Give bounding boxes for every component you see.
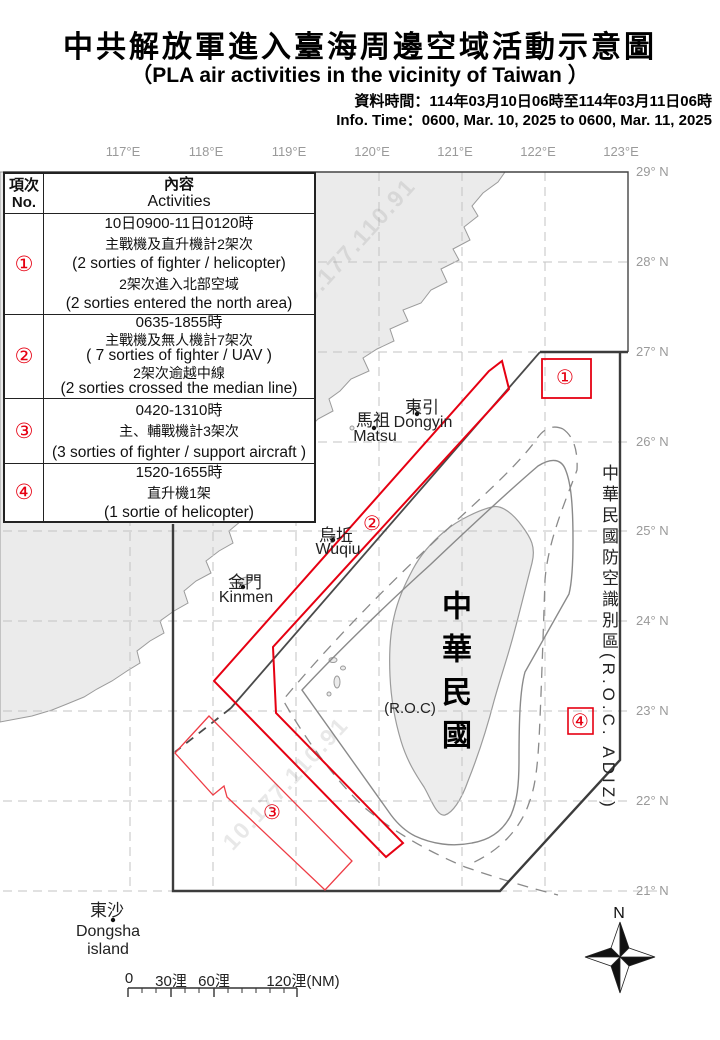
compass-rose-icon [585, 922, 655, 993]
info-time-en: Info. Time：0600, Mar. 10, 2025 to 0600, … [336, 109, 712, 130]
row1-line: (2 sorties of fighter / helicopter) [72, 254, 286, 274]
taiwan-roc-label: 中華民國 [431, 590, 475, 762]
row1-line: 2架次進入北部空域 [119, 274, 239, 294]
header-content-en: Activities [147, 193, 210, 211]
row2-line: 主戰機及無人機計7架次 [105, 332, 253, 349]
header-activities-cell: 內容 Activities [44, 174, 314, 213]
compass-north-label: N [604, 905, 634, 923]
row4-line: 1520-1655時 [136, 463, 223, 483]
table-row: ① 10日0900-11日0120時 主戰機及直升機計2架次 (2 sortie… [5, 214, 314, 315]
row1-line: (2 sorties entered the north area) [66, 294, 293, 314]
header-no-en: No. [12, 194, 36, 211]
lon-label-123e: 123°E [594, 144, 648, 159]
row3-line: 主、輔戰機計3架次 [119, 421, 239, 442]
lat-label-27n: 27° N [636, 344, 696, 359]
row1-number: ① [15, 252, 34, 277]
row1-line: 主戰機及直升機計2架次 [105, 234, 253, 254]
lon-label-118e: 118°E [179, 144, 233, 159]
table-row: ③ 0420-1310時 主、輔戰機計3架次 (3 sorties of fig… [5, 399, 314, 464]
lat-label-24n: 24° N [636, 613, 696, 628]
adiz-vertical-label: 中華民國防空識別區(R.O.C. ADIZ) [596, 464, 621, 811]
lat-label-23n: 23° N [636, 703, 696, 718]
row3-line: 0420-1310時 [136, 400, 223, 421]
area-marker-2: ② [357, 511, 387, 536]
scale-label-60: 60浬 [169, 970, 259, 991]
lon-label-121e: 121°E [428, 144, 482, 159]
header-no-cell: 項次 No. [5, 174, 44, 213]
lon-label-120e: 120°E [345, 144, 399, 159]
lon-label-119e: 119°E [262, 144, 316, 159]
dongsha-label-zh: 東沙 [77, 896, 137, 921]
table-header-row: 項次 No. 內容 Activities [5, 174, 314, 214]
scale-label-120: 120浬(NM) [258, 970, 348, 991]
lat-label-25n: 25° N [636, 523, 696, 538]
pla-activity-map-page: 中共解放軍進入臺海周邊空域活動示意圖 （PLA air activities i… [0, 0, 720, 1040]
row3-number: ③ [15, 419, 34, 444]
row4-number: ④ [15, 480, 34, 505]
activities-table: 項次 No. 內容 Activities ① 10日0900-11日0120時 … [3, 172, 316, 523]
row4-line: (1 sortie of helicopter) [104, 503, 254, 523]
table-row: ② 0635-1855時 主戰機及無人機計7架次 ( 7 sorties of … [5, 315, 314, 399]
dongsha-label-en1: Dongsha [70, 923, 146, 941]
row2-line: ( 7 sorties of fighter / UAV ) [86, 348, 272, 365]
matsu-label-en: Matsu [345, 428, 405, 446]
dongsha-label-en2: island [70, 941, 146, 959]
lat-label-21n: 21° N [636, 883, 696, 898]
wuqiu-label-en: Wuqiu [308, 541, 368, 559]
row1-line: 10日0900-11日0120時 [105, 214, 254, 234]
row2-line: (2 sorties crossed the median line) [61, 381, 298, 398]
table-row: ④ 1520-1655時 直升機1架 (1 sortie of helicopt… [5, 464, 314, 521]
roc-abbrev-label: (R.O.C) [370, 700, 450, 717]
lat-label-29n: 29° N [636, 164, 696, 179]
lon-label-117e: 117°E [96, 144, 150, 159]
row2-line: 0635-1855時 [136, 315, 223, 332]
kinmen-label-en: Kinmen [213, 589, 279, 607]
row2-number: ② [15, 344, 34, 369]
lat-label-22n: 22° N [636, 793, 696, 808]
row4-line: 直升機1架 [147, 483, 211, 503]
lon-label-122e: 122°E [511, 144, 565, 159]
area-marker-4: ④ [565, 709, 595, 734]
header-no-zh: 項次 [9, 177, 39, 194]
data-time-zh: 資料時間：114年03月10日06時至114年03月11日06時 [354, 90, 712, 111]
lat-label-28n: 28° N [636, 254, 696, 269]
lat-label-26n: 26° N [636, 434, 696, 449]
row3-line: (3 sorties of fighter / support aircraft… [52, 442, 306, 463]
page-subtitle: （PLA air activities in the vicinity of T… [0, 59, 720, 89]
header-content-zh: 內容 [164, 176, 194, 193]
area-marker-1: ① [550, 365, 580, 390]
row2-line: 2架次逾越中線 [133, 365, 225, 382]
